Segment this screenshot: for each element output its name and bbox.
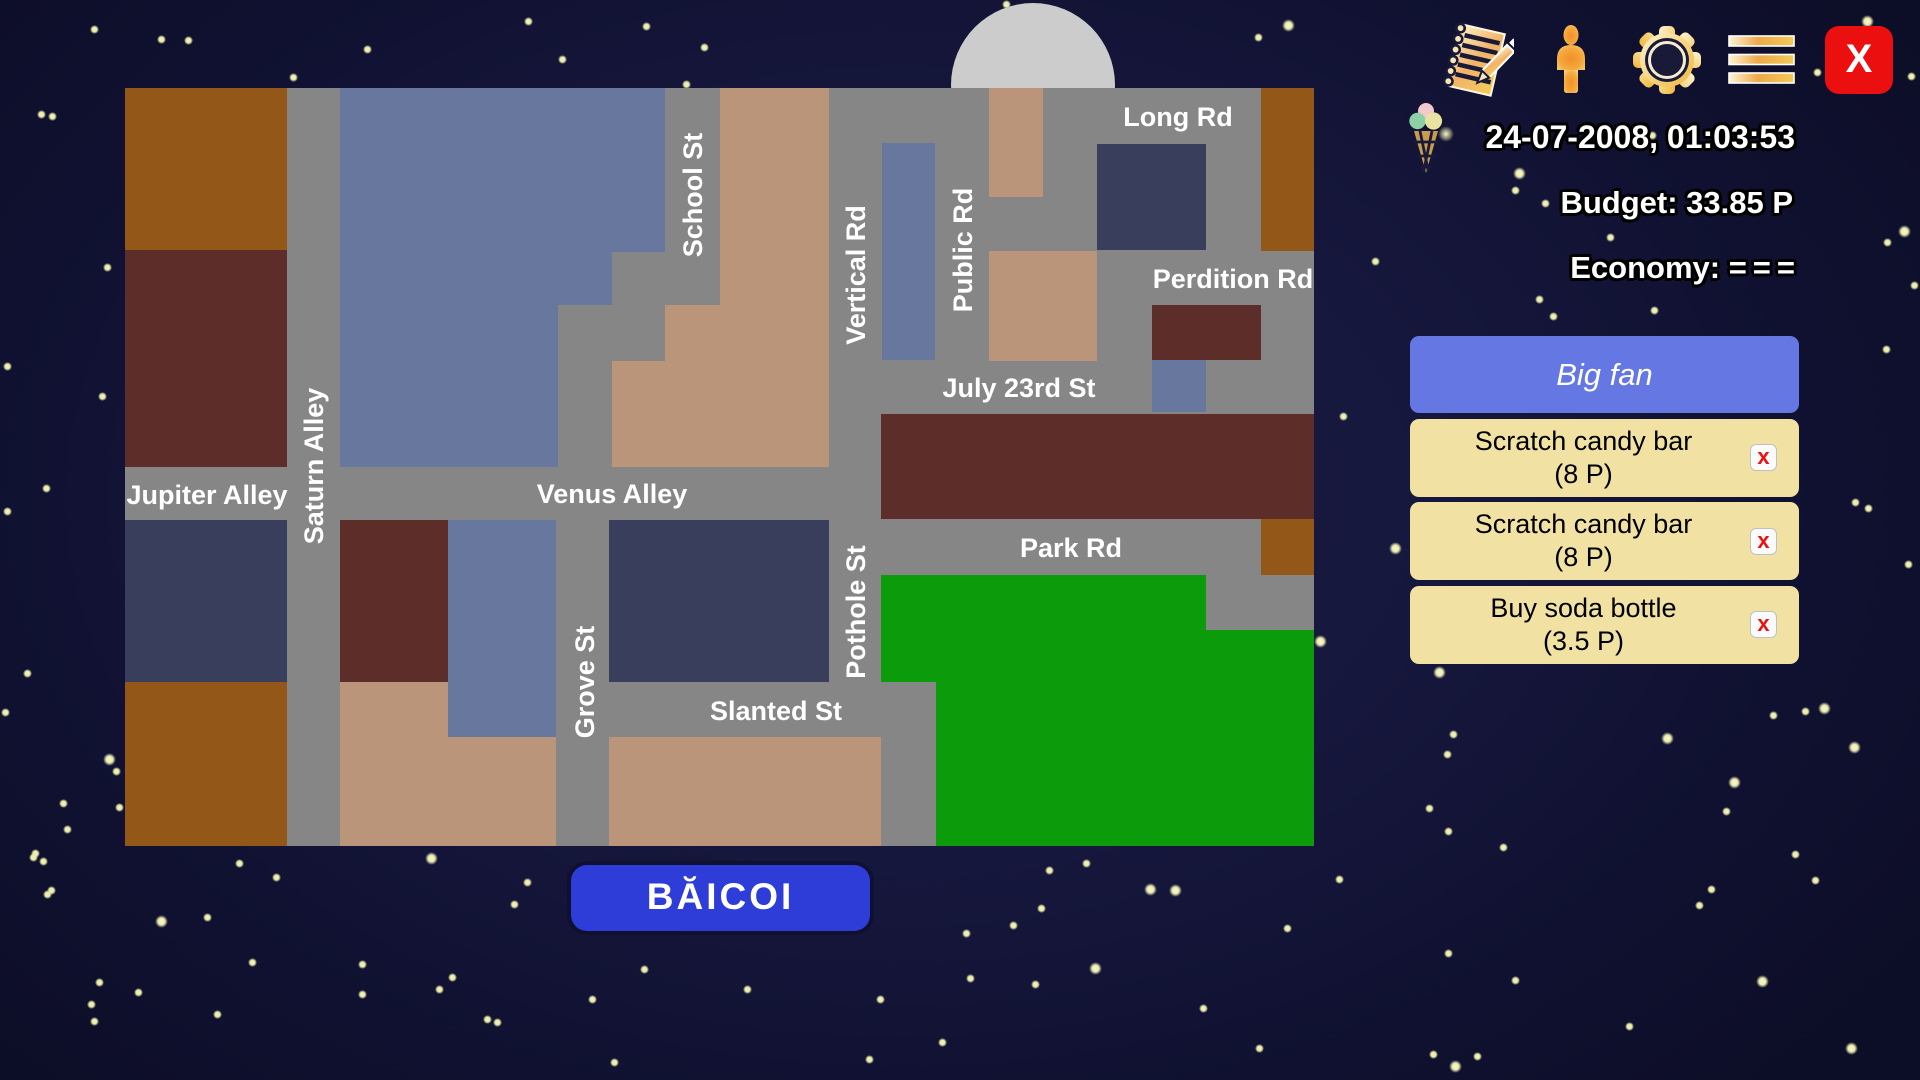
svg-text:Saturn Alley: Saturn Alley [299, 388, 329, 545]
svg-text:Public Rd: Public Rd [948, 188, 978, 313]
svg-text:Jupiter Alley: Jupiter Alley [126, 480, 287, 510]
svg-text:Perdition Rd: Perdition Rd [1153, 264, 1314, 294]
svg-text:Venus Alley: Venus Alley [537, 479, 688, 509]
svg-text:Pothole St: Pothole St [841, 545, 871, 679]
svg-text:Grove St: Grove St [570, 626, 600, 739]
svg-text:Slanted St: Slanted St [710, 696, 842, 726]
svg-text:Vertical Rd: Vertical Rd [841, 205, 871, 345]
svg-text:Long Rd: Long Rd [1123, 102, 1232, 132]
svg-text:Park Rd: Park Rd [1020, 533, 1122, 563]
svg-text:July 23rd St: July 23rd St [942, 373, 1095, 403]
svg-text:School St: School St [678, 133, 708, 258]
